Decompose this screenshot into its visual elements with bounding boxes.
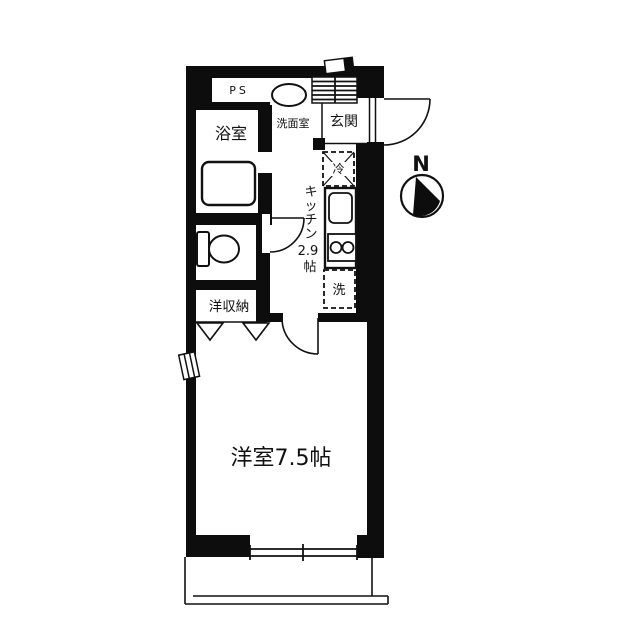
- closet-folding-door: [197, 323, 269, 340]
- wall-toilet-closet: [186, 280, 265, 290]
- wall-bath-washroom-upper: [258, 105, 272, 152]
- wall-left: [186, 66, 196, 557]
- toilet-bowl: [209, 236, 239, 263]
- shoe-cabinet-hatch: [312, 77, 357, 103]
- entrance-door-swing: [384, 99, 430, 145]
- kitchen-label: キ ッ チ ン 2.9 帖: [298, 185, 319, 275]
- wall-hall-bottom-left: [256, 313, 283, 322]
- shoe-cabinet: [312, 57, 357, 103]
- main-room-label: 洋室7.5帖: [231, 446, 332, 471]
- wall-top: [186, 66, 384, 78]
- wall-right-upper: [357, 66, 384, 98]
- bathtub: [202, 162, 255, 205]
- main-room-door-swing: [282, 318, 318, 354]
- kitchen-label-char: ン: [304, 227, 317, 242]
- entrance-label: 玄関: [330, 113, 358, 130]
- closet-label: 洋収納: [209, 299, 250, 315]
- washer-label: 洗: [332, 283, 345, 298]
- kitchen-counter: [325, 188, 356, 268]
- north-compass: N: [401, 152, 443, 217]
- kitchen-size-label: 2.9: [298, 244, 319, 259]
- toilet-door-opening: [262, 214, 270, 253]
- shoe-cabinet-top-flap: [324, 57, 353, 73]
- wall-right-kitchen: [356, 143, 367, 322]
- kitchen-label-char: チ: [304, 213, 317, 228]
- fridge-label: 冷: [332, 162, 344, 176]
- stove-burner: [331, 242, 342, 253]
- wall-hall-bottom-right: [318, 313, 384, 322]
- stove-burner: [343, 242, 354, 253]
- wash-basin: [272, 84, 306, 106]
- wall-ps-bottom: [186, 102, 270, 110]
- folding-door-triangle: [243, 323, 269, 340]
- balcony: [185, 557, 388, 604]
- washroom-label: 洗面室: [277, 116, 310, 130]
- flap-dark-end: [343, 57, 354, 71]
- wall-right-main: [367, 142, 384, 558]
- kitchen-label-char: ッ: [304, 199, 317, 214]
- toilet: [197, 232, 239, 266]
- bathroom-label: 浴室: [215, 124, 247, 143]
- ps-label: PS: [229, 84, 249, 97]
- wall-bottom-right: [357, 535, 384, 558]
- sliding-window: [250, 544, 357, 561]
- floor-plan-drawing: N PS 浴室 洗面室 玄関 冷 キ ッ チ ン 2.9 帖 洗 洋収納 洋室7…: [0, 0, 640, 640]
- wall-bottom-left: [186, 535, 250, 557]
- folding-door-triangle: [197, 323, 223, 340]
- kitchen-label-char: キ: [304, 185, 317, 200]
- side-window: [179, 352, 200, 380]
- toilet-tank: [197, 232, 209, 266]
- compass-n-label: N: [412, 152, 430, 176]
- floor-plan-page: N PS 浴室 洗面室 玄関 冷 キ ッ チ ン 2.9 帖 洗 洋収納 洋室7…: [0, 0, 640, 640]
- entrance-door-arc: [384, 99, 430, 145]
- kitchen-sink: [329, 193, 352, 223]
- wall-bath-bottom: [186, 213, 270, 225]
- kitchen-unit-label: 帖: [303, 260, 316, 275]
- main-room-door-arc: [282, 318, 318, 354]
